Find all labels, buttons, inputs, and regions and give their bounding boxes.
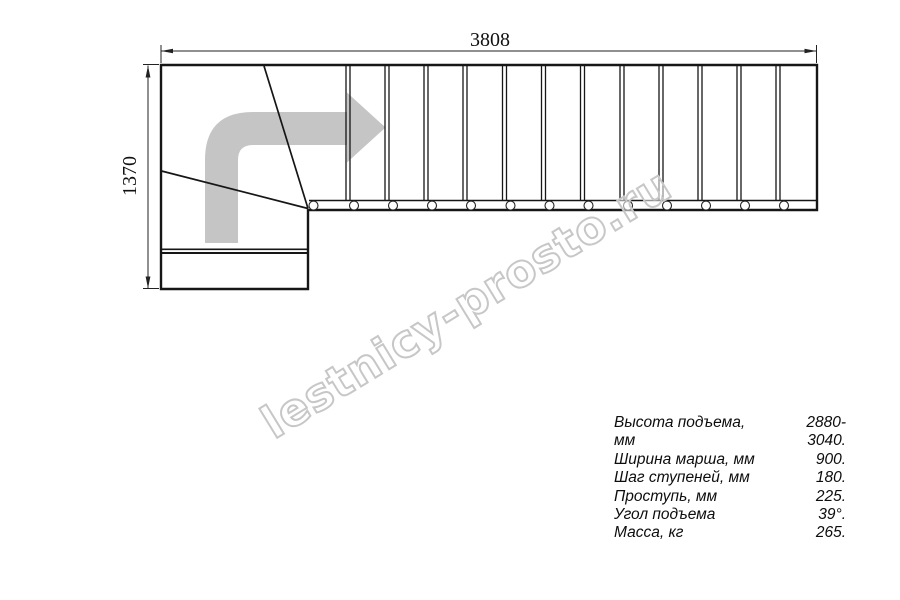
- dimension-left: [143, 65, 159, 289]
- spec-value: 265.: [816, 524, 846, 542]
- dimension-label-top: 3808: [440, 29, 540, 52]
- spec-label: Проступь, мм: [614, 488, 717, 506]
- spec-row-tread: Проступь, мм 225.: [614, 488, 846, 506]
- spec-value: 39°.: [818, 506, 846, 524]
- spec-value: 2880-3040.: [769, 414, 846, 451]
- spec-row-width: Ширина марша, мм 900.: [614, 451, 846, 469]
- dim-arrowhead-right: [805, 49, 817, 54]
- spec-label: Угол подъема: [614, 506, 715, 524]
- spec-label: Шаг ступеней, мм: [614, 469, 750, 487]
- spec-label: Масса, кг: [614, 524, 683, 542]
- dim-arrowhead-left: [161, 49, 173, 54]
- spec-value: 900.: [816, 451, 846, 469]
- dimension-label-left: 1370: [119, 131, 141, 221]
- spec-row-height: Высота подъема, мм 2880-3040.: [614, 414, 846, 451]
- spec-row-mass: Масса, кг 265.: [614, 524, 846, 542]
- spec-row-angle: Угол подъема 39°.: [614, 506, 846, 524]
- spec-label: Высота подъема, мм: [614, 414, 769, 451]
- stair-outline: [161, 65, 817, 289]
- drawing-canvas: lestnicy-prosto.ru 3808 1370 Высота подъ…: [0, 0, 900, 600]
- baluster-circles: [309, 201, 789, 210]
- dim-arrowhead-down: [146, 277, 151, 289]
- spec-label: Ширина марша, мм: [614, 451, 755, 469]
- tread-dividers: [346, 66, 780, 200]
- spec-table: Высота подъема, мм 2880-3040. Ширина мар…: [614, 414, 846, 543]
- spec-value: 180.: [816, 469, 846, 487]
- spec-row-step: Шаг ступеней, мм 180.: [614, 469, 846, 487]
- spec-value: 225.: [816, 488, 846, 506]
- dim-arrowhead-up: [146, 66, 151, 78]
